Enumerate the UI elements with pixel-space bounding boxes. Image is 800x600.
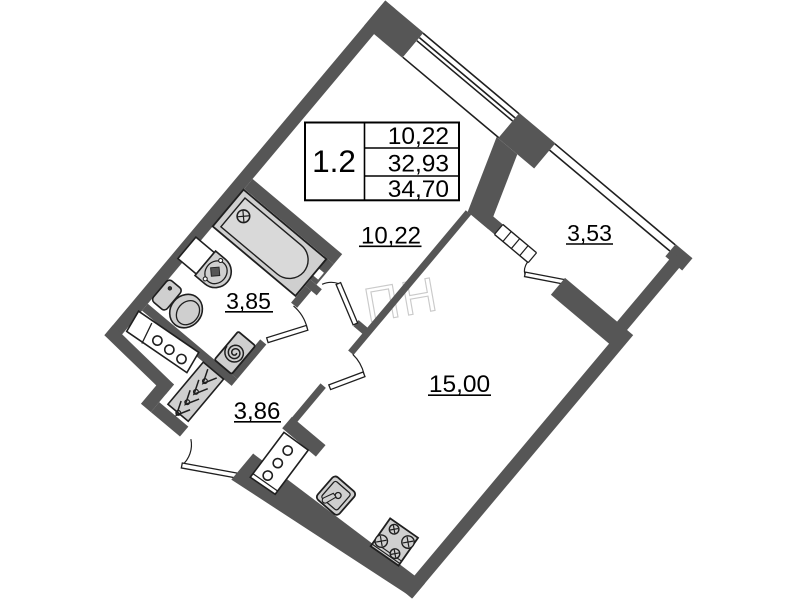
svg-text:3,53: 3,53 — [567, 220, 612, 246]
svg-text:10,22: 10,22 — [388, 123, 449, 150]
svg-text:3,86: 3,86 — [234, 398, 281, 425]
svg-text:15,00: 15,00 — [429, 371, 490, 398]
svg-text:32,93: 32,93 — [388, 151, 449, 178]
svg-text:1.2: 1.2 — [312, 143, 356, 179]
svg-text:10,22: 10,22 — [361, 223, 421, 250]
svg-text:3,85: 3,85 — [226, 288, 271, 314]
svg-text:34,70: 34,70 — [388, 176, 449, 203]
